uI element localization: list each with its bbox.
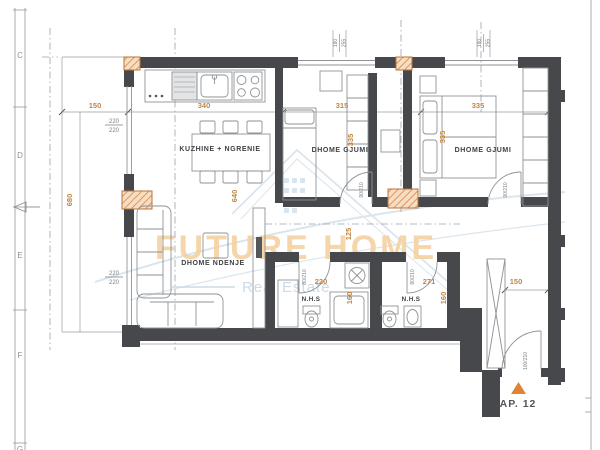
dim-window-left-bottom-h: 220 (109, 280, 120, 286)
dim-window-top1-w: 180 (333, 39, 339, 48)
dim-window-top1: 180 255 (333, 34, 348, 52)
tv-cabinet (253, 208, 265, 328)
sink-icon (197, 72, 232, 100)
dim-window-top1-h: 255 (342, 39, 348, 48)
dim-entry-width: 150 (510, 277, 523, 286)
dim-kitchen-depth: 640 (230, 190, 239, 203)
nightstand-bedroom2-top (420, 76, 436, 93)
ruler-letter-f: F (18, 351, 23, 360)
dim-bath2-depth: 160 (439, 292, 448, 305)
bath2-label: N.H.S (402, 296, 421, 303)
house-logo-icon (95, 150, 565, 300)
bathroom2-fixtures (381, 262, 437, 327)
bath1-label: N.H.S (302, 296, 321, 303)
stove-icon (234, 72, 262, 100)
sofa (137, 206, 223, 328)
dim-window-left-top: 220 220 (105, 119, 123, 134)
dim-bath2-width: 271 (423, 277, 436, 286)
window-left-lower (127, 237, 132, 325)
ruler-letter-c: C (17, 51, 23, 60)
ruler: C D E F G (13, 8, 40, 450)
bed-bedroom2 (420, 96, 496, 178)
floor-plan-screenshot: FUTURE HOME Real Estate C D E F G (0, 0, 600, 450)
ruler-letter-e: E (17, 251, 22, 260)
dim-window-left-top-w: 220 (109, 119, 120, 125)
dim-door-entry: 100/210 (523, 352, 529, 370)
dim-window-top2-w: 180 (477, 39, 483, 48)
dim-door-bedroom1: 90/210 (359, 182, 365, 198)
kitchen-counter (145, 70, 265, 102)
door-bedroom1 (340, 172, 372, 204)
dim-bedroom2-depth: 335 (438, 131, 447, 144)
window-bedroom2 (445, 61, 518, 66)
ruler-letter-g: G (17, 445, 23, 450)
sink-icon-bath2 (404, 306, 421, 327)
dishwasher-icon (172, 72, 197, 100)
dim-bedroom1-depth: 335 (346, 134, 355, 147)
dim-hall-depth: 125 (344, 228, 353, 241)
dim-window-left-bottom-w: 220 (109, 271, 120, 277)
dim-bedroom2-width: 335 (472, 101, 485, 110)
apartment-label: AP. 12 (500, 398, 537, 410)
dim-window-top2-h: 255 (486, 39, 492, 48)
bed-bedroom1 (283, 108, 316, 200)
watermark: FUTURE HOME Real Estate (95, 150, 565, 300)
toilet-icon-bath2 (381, 306, 398, 327)
column-center (388, 189, 418, 208)
bedroom2-label: DHOME GJUMI (455, 147, 512, 154)
window-left-upper (127, 86, 132, 174)
dim-door-bath2: 80/210 (410, 269, 416, 285)
column-top-mid (396, 57, 412, 70)
dim-kitchen-width: 340 (198, 101, 211, 110)
bedroom1-label: DHOME GJUMI (312, 147, 369, 154)
dim-bedroom1-width: 315 (336, 101, 349, 110)
elevator-shaft (487, 259, 505, 368)
toilet-icon-bath1 (303, 306, 320, 327)
dim-bath1-width: 220 (315, 277, 328, 286)
wardrobe-bedroom2 (523, 68, 548, 206)
door-entry (502, 331, 541, 369)
dim-window-top2: 180 255 (477, 34, 492, 52)
niche-shelf (381, 130, 400, 152)
ruler-letter-d: D (17, 151, 23, 160)
dim-door-bath1: 80/210 (302, 269, 308, 285)
window-bedroom1 (298, 61, 375, 66)
dim-bath1-depth: 160 (345, 292, 354, 305)
column-top-left (124, 57, 140, 70)
dim-balcony-width: 150 (89, 101, 102, 110)
dim-window-left-top-h: 220 (109, 128, 120, 134)
nightstand-bedroom1 (320, 71, 342, 91)
kitchen-label: KUZHINE + NGRENIE (179, 146, 260, 153)
nightstand-bedroom2-bottom (420, 180, 436, 196)
dim-door-bedroom2: 90/210 (503, 182, 509, 198)
living-label: DHOME NDENJE (181, 260, 245, 267)
dim-left-height: 680 (65, 194, 74, 207)
entry-marker-triangle (511, 382, 526, 394)
